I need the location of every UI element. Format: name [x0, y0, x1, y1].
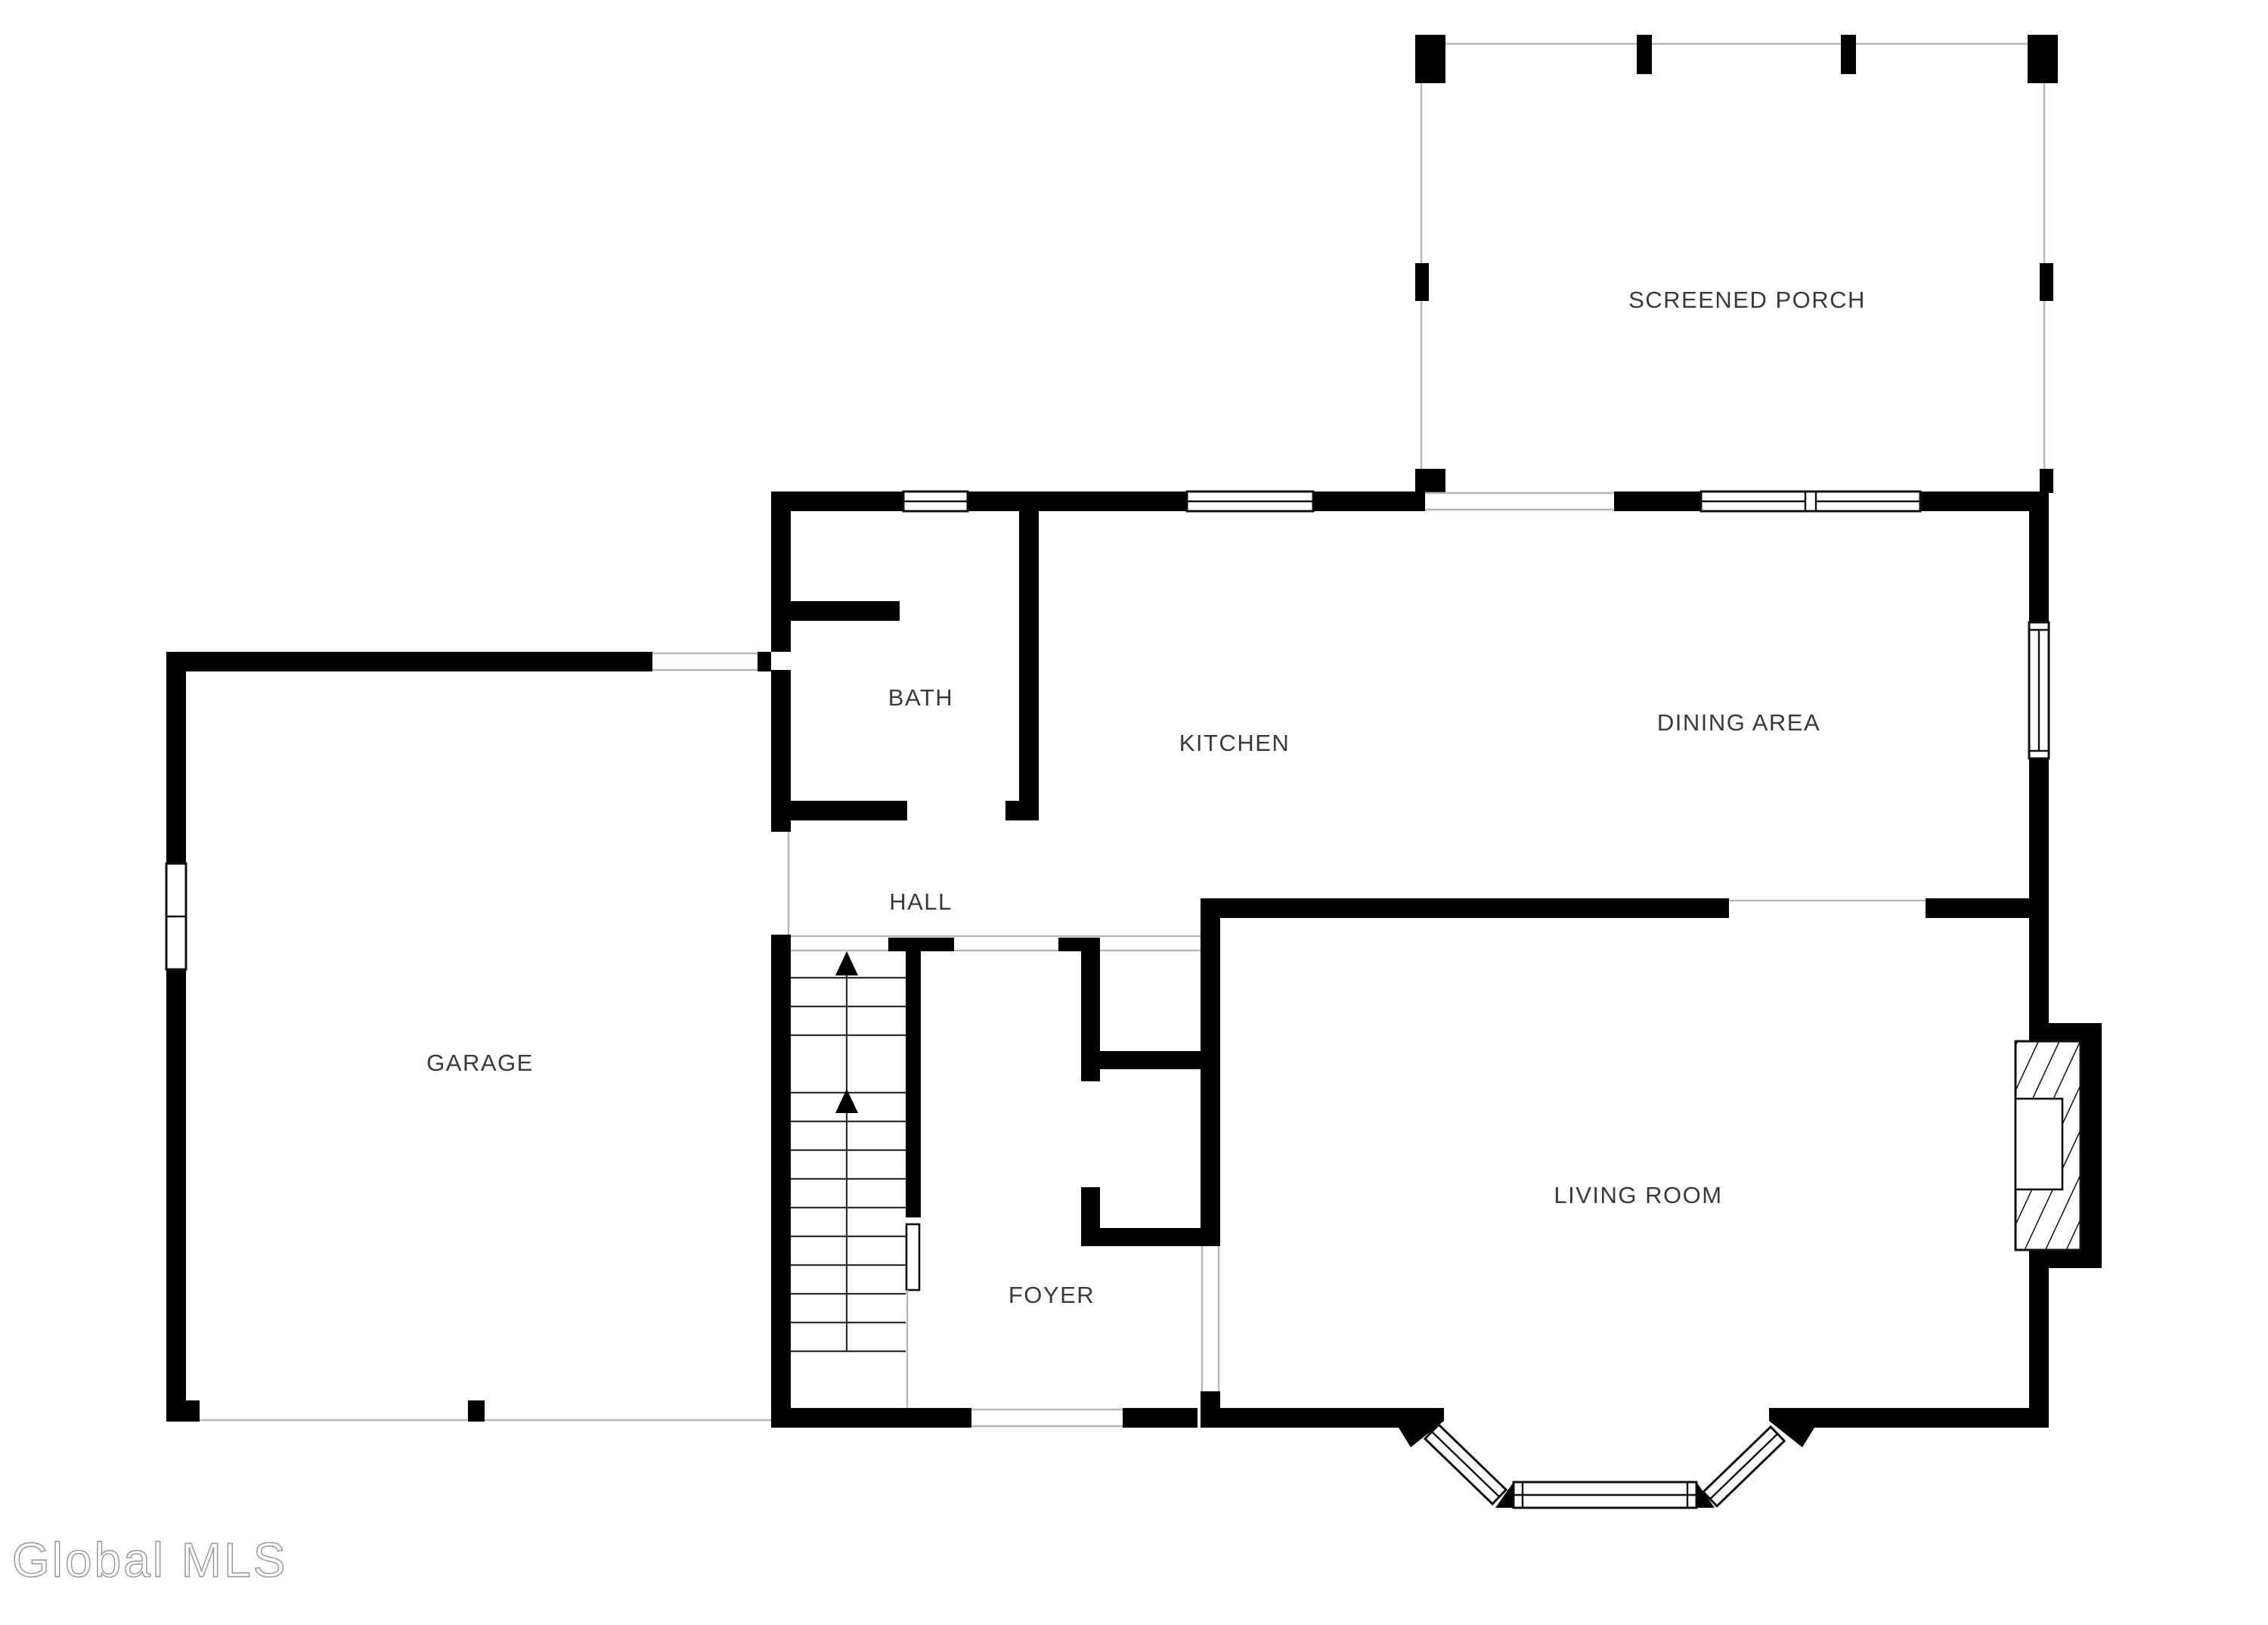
room-label-bath: BATH [888, 684, 953, 711]
window [2029, 622, 2049, 758]
staircase [791, 951, 921, 1408]
window [903, 492, 968, 511]
room-label-garage: GARAGE [426, 1050, 534, 1076]
window [1187, 492, 1313, 511]
fireplace-firebox [2015, 1099, 2062, 1189]
floor-plan-page: SCREENED PORCH [0, 0, 2268, 1625]
fireplace [2015, 1023, 2102, 1268]
porch-post [2040, 469, 2053, 493]
window [1703, 1427, 1784, 1506]
stairs-right-wall [906, 951, 921, 1217]
porch-post [1415, 35, 1445, 83]
room-label-kitchen: KITCHEN [1179, 730, 1290, 756]
garage-door-center-post [468, 1400, 485, 1422]
hall-wall-segment [888, 938, 954, 951]
porch-post [2028, 35, 2058, 83]
living-top-wall [1201, 898, 1729, 918]
watermark: Global MLS [12, 1533, 287, 1587]
hall-wall-segment [1058, 938, 1100, 951]
foyer: FOYER [1009, 1282, 1095, 1308]
window [1425, 1425, 1506, 1504]
closet-left-wall [1081, 951, 1100, 1081]
closet-divider-wall [1100, 1051, 1201, 1069]
foyer-closets [1081, 951, 1201, 1246]
room-label-foyer: FOYER [1009, 1282, 1095, 1308]
bath-partition-wall [791, 601, 900, 621]
garage-corner-foot [166, 1400, 200, 1422]
front-door-opening [971, 1409, 1123, 1426]
room-label-hall: HALL [889, 888, 953, 915]
garage: GARAGE [166, 652, 771, 1422]
bath: BATH [771, 492, 1039, 820]
stairs-door-leaf [906, 1224, 919, 1290]
porch-post [1415, 263, 1429, 301]
room-label-screened-porch: SCREENED PORCH [1628, 287, 1866, 313]
bath-right-wall [1019, 492, 1039, 820]
hall: HALL [791, 888, 1201, 951]
screened-porch: SCREENED PORCH [1415, 35, 2058, 493]
bath-bottom-wall [771, 801, 907, 820]
double-window [1701, 492, 1920, 511]
house-right-wall [2029, 492, 2049, 1428]
living-door-opening [1202, 1246, 1219, 1391]
porch-door-opening [1425, 493, 1614, 510]
closet-bottom-wall [1100, 1228, 1201, 1246]
bay-window [1399, 1408, 1814, 1508]
stairs-up-arrow-icon [835, 951, 858, 975]
living-room: LIVING ROOM [1201, 898, 2049, 1428]
side-door-opening [652, 653, 758, 670]
garage-top-wall [166, 652, 652, 671]
porch-post [1415, 469, 1445, 493]
room-label-living-room: LIVING ROOM [1554, 1182, 1722, 1208]
living-west-wall [1201, 898, 1220, 1246]
porch-post [2040, 263, 2053, 301]
house-top-wall [771, 492, 2049, 511]
window [1514, 1482, 1696, 1508]
floor-plan: SCREENED PORCH [0, 0, 2268, 1625]
garage-left-wall [166, 652, 186, 864]
room-label-dining-area: DINING AREA [1657, 709, 1820, 736]
house-left-wall [771, 492, 791, 1428]
porch-post [1637, 35, 1652, 74]
window [166, 864, 186, 969]
porch-post [1841, 35, 1856, 74]
